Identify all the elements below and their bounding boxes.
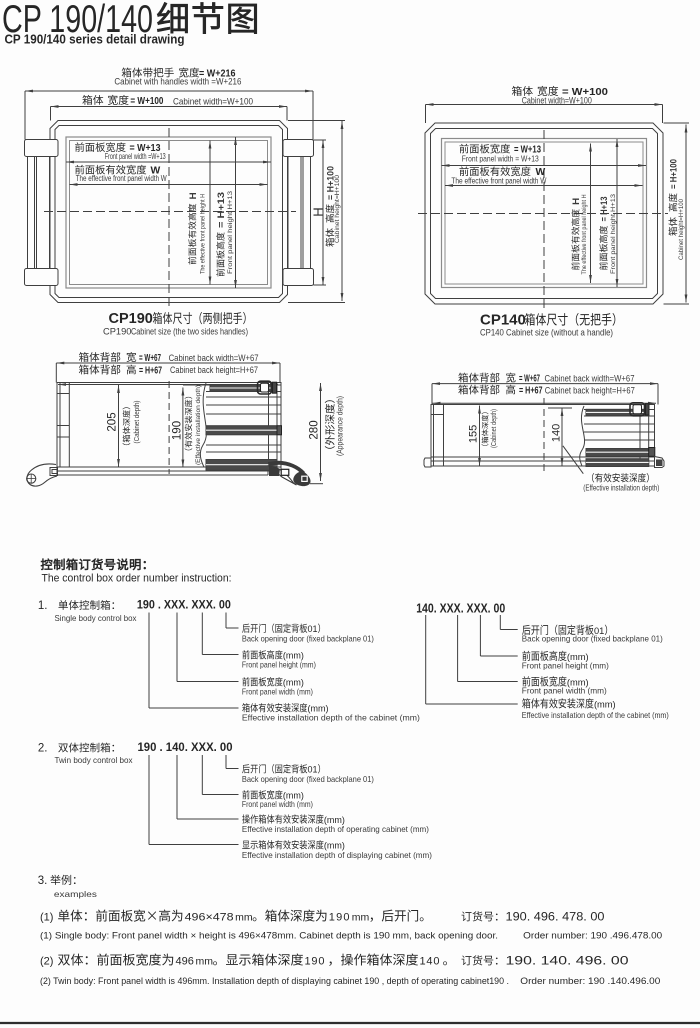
svg-text:190 . XXX. XXX. 00: 190 . XXX. XXX. 00 bbox=[137, 598, 231, 612]
svg-text:mm: mm bbox=[235, 912, 253, 924]
svg-text:H: H bbox=[310, 207, 325, 216]
svg-text:The effective front panel heig: The effective front panel height H bbox=[199, 194, 206, 274]
svg-text:Order number: 190 .496.478.00: Order number: 190 .496.478.00 bbox=[523, 931, 662, 941]
svg-text:(Cabinet depth): (Cabinet depth) bbox=[491, 409, 498, 448]
svg-text:Cabinet back width=W+67: Cabinet back width=W+67 bbox=[545, 374, 635, 384]
svg-text:Back opening door (fixed backp: Back opening door (fixed backplane 01) bbox=[522, 634, 663, 644]
svg-text:CP140: CP140 bbox=[480, 312, 526, 329]
svg-text:155: 155 bbox=[468, 425, 480, 443]
svg-text:(1) Single body: Front panel w: (1) Single body: Front panel width × hei… bbox=[40, 931, 498, 941]
svg-text:(2) Twin body: Front panel wid: (2) Twin body: Front panel width is 496m… bbox=[40, 976, 509, 986]
svg-text:= H+13: = H+13 bbox=[599, 197, 610, 222]
svg-text:Cabinet with handles width =W+: Cabinet with handles width =W+216 bbox=[114, 77, 241, 87]
svg-text:Back opening door (fixed backp: Back opening door (fixed backplane 01) bbox=[242, 634, 374, 644]
svg-text:280: 280 bbox=[308, 420, 320, 439]
svg-text:Front panel width (mm): Front panel width (mm) bbox=[242, 687, 313, 697]
svg-text:The control box order number i: The control box order number instruction… bbox=[42, 573, 232, 585]
svg-text:Single body control box: Single body control box bbox=[55, 613, 138, 623]
svg-text:496×478: 496×478 bbox=[185, 912, 234, 924]
svg-text:Effective installation depth o: Effective installation depth of operatin… bbox=[242, 824, 429, 834]
svg-text:examples: examples bbox=[54, 889, 97, 899]
svg-text:01: 01 bbox=[308, 624, 318, 634]
svg-text:(1): (1) bbox=[40, 912, 53, 924]
svg-text:(mm): (mm) bbox=[594, 700, 616, 710]
svg-text:Front panel height H+13: Front panel height H+13 bbox=[610, 194, 617, 274]
svg-text:Front panel height H+13: Front panel height H+13 bbox=[227, 191, 234, 274]
svg-text:= H+13: = H+13 bbox=[216, 192, 227, 228]
svg-text:(Appearance depth): (Appearance depth) bbox=[336, 396, 345, 456]
svg-text:Cabinet height=H+100: Cabinet height=H+100 bbox=[678, 199, 685, 260]
svg-text:Order number: 190 .140.496.00: Order number: 190 .140.496.00 bbox=[520, 976, 660, 986]
svg-text:(Cabinet depth): (Cabinet depth) bbox=[132, 400, 141, 443]
svg-text:190: 190 bbox=[171, 421, 183, 440]
svg-text:190: 190 bbox=[305, 956, 326, 968]
svg-text:Cabinet back height=H+67: Cabinet back height=H+67 bbox=[545, 386, 635, 396]
svg-text:CP190: CP190 bbox=[109, 311, 153, 327]
svg-text:H: H bbox=[188, 192, 199, 199]
svg-text:Cabinet back height=H+67: Cabinet back height=H+67 bbox=[170, 365, 258, 375]
svg-text:190 . 140. XXX. 00: 190 . 140. XXX. 00 bbox=[138, 740, 233, 754]
svg-text:Cabinet back width=W+67: Cabinet back width=W+67 bbox=[169, 353, 259, 363]
svg-text:CP140 Cabinet size (without a: CP140 Cabinet size (without a handle) bbox=[480, 328, 613, 338]
svg-text:2.: 2. bbox=[38, 743, 48, 755]
svg-text:= H+67: = H+67 bbox=[519, 386, 543, 397]
svg-text:Effective installation depth o: Effective installation depth of the cabi… bbox=[522, 710, 669, 720]
svg-text:= H+67: = H+67 bbox=[139, 366, 162, 377]
svg-text:CP190: CP190 bbox=[103, 327, 131, 337]
svg-text:(Effective installation depth): (Effective installation depth) bbox=[583, 483, 659, 493]
svg-text:Cabinet width=W+100: Cabinet width=W+100 bbox=[173, 97, 253, 107]
svg-text:The effective front panel widt: The effective front panel width W bbox=[76, 174, 168, 183]
svg-text:Front panel height (mm): Front panel height (mm) bbox=[242, 660, 316, 670]
svg-text:(2): (2) bbox=[40, 956, 53, 968]
svg-text:Effective installation depth o: Effective installation depth of the cabi… bbox=[242, 713, 420, 723]
svg-text:3.: 3. bbox=[38, 875, 48, 887]
svg-text:Front panel width =W+13: Front panel width =W+13 bbox=[105, 151, 166, 161]
svg-text:(Effective installation depth): (Effective installation depth) bbox=[195, 385, 202, 465]
svg-text:140: 140 bbox=[550, 424, 562, 442]
svg-text:Twin body control box: Twin body control box bbox=[55, 755, 134, 765]
svg-text:= H+100: = H+100 bbox=[668, 159, 679, 189]
svg-text:= W+67: = W+67 bbox=[519, 374, 540, 385]
svg-text:mm: mm bbox=[196, 956, 214, 968]
svg-text:496: 496 bbox=[176, 956, 194, 968]
svg-text:mm: mm bbox=[352, 912, 370, 924]
svg-text:Cabinet height=H+100: Cabinet height=H+100 bbox=[334, 175, 341, 243]
svg-text:140. XXX. XXX. 00: 140. XXX. XXX. 00 bbox=[416, 601, 505, 616]
svg-text:Back opening door (fixed backp: Back opening door (fixed backplane 01) bbox=[242, 774, 374, 784]
svg-text:1.: 1. bbox=[38, 600, 48, 612]
svg-text:205: 205 bbox=[106, 412, 118, 431]
svg-text:Effective installation depth o: Effective installation depth of displayi… bbox=[242, 850, 432, 860]
svg-text:Front panel width (mm): Front panel width (mm) bbox=[522, 686, 607, 696]
svg-text:The effective front panel widt: The effective front panel width W bbox=[451, 176, 547, 185]
svg-text:190: 190 bbox=[329, 912, 351, 924]
svg-text:190. 140. 496. 00: 190. 140. 496. 00 bbox=[506, 956, 629, 968]
svg-text:Front panel width = W+13: Front panel width = W+13 bbox=[462, 153, 539, 163]
svg-text:190. 496. 478. 00: 190. 496. 478. 00 bbox=[506, 912, 605, 924]
svg-text:= W+67: = W+67 bbox=[139, 353, 161, 364]
svg-text:= W+100: = W+100 bbox=[130, 96, 163, 107]
svg-text:Front panel height (mm): Front panel height (mm) bbox=[522, 661, 609, 671]
svg-text:The effective front panel heig: The effective front panel height H bbox=[581, 194, 588, 274]
svg-text:CP 190/140 series detail drawi: CP 190/140 series detail drawing bbox=[5, 32, 185, 47]
svg-text:140: 140 bbox=[420, 956, 441, 968]
svg-text:Cabinet width=W+100: Cabinet width=W+100 bbox=[522, 96, 592, 106]
svg-text:Front panel width (mm): Front panel width (mm) bbox=[242, 799, 313, 809]
svg-text:Cabinet size (the two sides ha: Cabinet size (the two sides handles) bbox=[131, 327, 248, 337]
